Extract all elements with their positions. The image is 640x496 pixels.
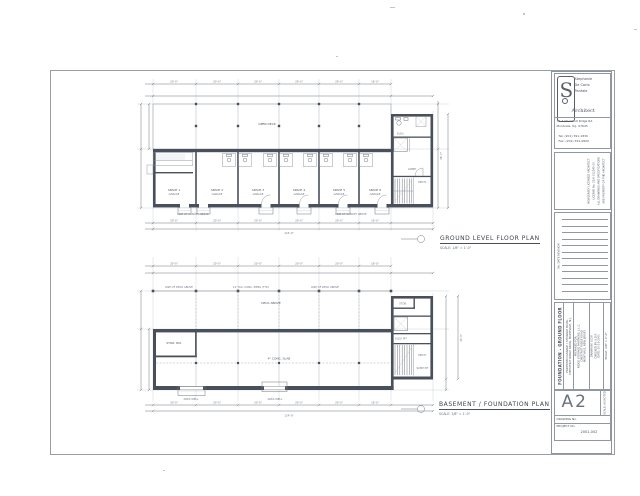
scan-speck (390, 7, 395, 8)
wing-interior: LOBBY MECH. ELEV. (393, 117, 427, 205)
divider (555, 117, 610, 118)
svg-text:GARAGE: GARAGE (212, 192, 223, 196)
svg-text:20'-0": 20'-0" (213, 80, 221, 84)
open-deck-area: OPEN DECK (153, 103, 391, 149)
drawing-title-rotated: FOUNDATION - GROUND FLOOR (557, 307, 562, 385)
svg-text:16'-0": 16'-0" (371, 262, 379, 266)
architect-tel: Tel: (201) 391-1830 (559, 134, 588, 138)
architect-info-box: S Stephanie De Carlo Pantale Architect 7… (554, 73, 611, 149)
svg-text:SPACE 1: SPACE 1 (168, 188, 180, 192)
svg-text:36'-0": 36'-0" (439, 152, 443, 160)
svg-text:20'-0": 20'-0" (295, 401, 303, 405)
architect-fax: Fax: (201) 391-0600 (559, 139, 590, 143)
svg-text:GARAGE: GARAGE (370, 192, 381, 196)
deck-label: DECK ABOVE (261, 301, 281, 305)
svg-text:20'-0": 20'-0" (295, 219, 303, 223)
mech-label: MECH. (418, 353, 427, 357)
info-line: DATE: 10-15-2001 (598, 334, 601, 358)
sheet-strip-rotated: SCALE: AS NOTED (603, 391, 606, 414)
svg-text:LINE OF DECK ABOVE: LINE OF DECK ABOVE (311, 285, 339, 289)
project-box: FOUNDATION - GROUND FLOOR PROPOSED GARAG… (554, 302, 611, 390)
svg-text:20'-0": 20'-0" (213, 262, 221, 266)
architect-address-2: Montvale, N.J. 07645 (557, 124, 588, 128)
ground-floor-plan-drawing: 20'-0" 20'-0" 20'-0" 20'-0" 20'-0" 16'-0… (129, 73, 465, 253)
architect-name-3: Pantale (575, 89, 588, 93)
svg-text:20'-0": 20'-0" (254, 80, 262, 84)
svg-text:GARAGE: GARAGE (169, 192, 180, 196)
scan-speck (523, 13, 525, 15)
unit1-closet (154, 153, 193, 166)
svg-text:20'-0": 20'-0" (213, 401, 221, 405)
svg-text:GARAGE: GARAGE (294, 192, 305, 196)
elev-label: ELEV. (397, 132, 404, 136)
svg-text:124'-0": 124'-0" (284, 414, 293, 418)
sheet-border: S Stephanie De Carlo Pantale Architect 7… (50, 70, 615, 455)
project-no-value: 2001-002 (581, 430, 598, 434)
svg-text:20'-0": 20'-0" (170, 262, 178, 266)
slab-label: 4" CONC. SLAB (268, 357, 291, 361)
project-line: CHESTNUT RIDGE ROAD, MONTVALE, N.J. (568, 317, 572, 375)
svg-text:20'-0": 20'-0" (170, 219, 178, 223)
svg-text:20'-0": 20'-0" (254, 401, 262, 405)
date-scale-rotated: SCALE: 1/8" = 1'-0" (604, 332, 608, 359)
dimension-texts: 20'-0" 20'-0" 20'-0" 20'-0" 20'-0" 16'-0… (170, 80, 443, 235)
architect-title: Architect (572, 108, 595, 114)
sump-label: SUMP PIT (416, 366, 429, 370)
svg-text:20'-0": 20'-0" (254, 219, 262, 223)
well-label: AREA WELL (184, 397, 199, 401)
svg-text:SPACE 3: SPACE 3 (252, 188, 264, 192)
svg-text:SPACE 2: SPACE 2 (211, 188, 223, 192)
svg-text:20'-0": 20'-0" (295, 80, 303, 84)
svg-text:20'-0": 20'-0" (254, 262, 262, 266)
svg-text:GARAGE: GARAGE (253, 192, 264, 196)
svg-text:16'-0": 16'-0" (371, 401, 379, 405)
svg-text:SPACE 6: SPACE 6 (369, 188, 381, 192)
detail-marker (401, 236, 425, 243)
canopy-label: LINE OF CANOPY ABOVE (177, 212, 209, 216)
storage-label: STOR. RM. (166, 341, 182, 345)
svg-text:33'-4": 33'-4" (459, 334, 463, 342)
architect-name-1: Stephanie (575, 77, 593, 81)
scanned-drawing-sheet: S Stephanie De Carlo Pantale Architect 7… (0, 0, 640, 496)
sheet-number-box: A2 SCALE: AS NOTED DRAWING No. PROJECT N… (554, 390, 611, 441)
svg-text:20'-0": 20'-0" (335, 262, 343, 266)
pier-line: LINE OF DECK ABOVE 12" DIA. CONC. PIERS … (152, 285, 393, 329)
svg-text:SPACE 4: SPACE 4 (293, 188, 305, 192)
scan-speck (336, 56, 338, 57)
svg-text:124'-0": 124'-0" (284, 231, 293, 235)
svg-text:16'-0": 16'-0" (371, 80, 379, 84)
project-no-label: PROJECT No. (557, 424, 576, 428)
basement-plan-drawing: 20'-0" 20'-0" 20'-0" 20'-0" 20'-0" 16'-0… (129, 251, 465, 421)
svg-text:12" DIA. CONC. PIERS (TYP.): 12" DIA. CONC. PIERS (TYP.) (233, 285, 269, 289)
dimension-texts: 20'-0" 20'-0" 20'-0" 20'-0" 20'-0" 16'-0… (170, 262, 463, 418)
license-line: NEW JERSEY LICENSED ARCHITECT (587, 158, 590, 203)
unit-labels: SPACE 1GARAGE SPACE 2GARAGE SPACE 3GARAG… (168, 188, 381, 196)
info-line: DRAWN BY: S.D.P. (591, 335, 594, 358)
svg-text:20'-0": 20'-0" (335, 80, 343, 84)
prepared-line: MONTVALE, NEW JERSEY (583, 330, 586, 362)
svg-text:GARAGE: GARAGE (334, 192, 345, 196)
scan-speck (163, 470, 165, 471)
revision-table: No. DATE REVISION (554, 212, 611, 300)
svg-text:20'-0": 20'-0" (335, 401, 343, 405)
svg-text:20'-0": 20'-0" (170, 401, 178, 405)
bathrooms (223, 154, 373, 167)
architect-address-1: 79-2 Chestnut Ridge Rd. (557, 119, 594, 123)
mech-label: MECH. (418, 180, 427, 184)
grid-lines (137, 79, 449, 231)
drawing-no-label: DRAWING No. (557, 417, 578, 421)
canopy-label: LINE OF CANOPY ABOVE (335, 212, 367, 216)
sheet-number: A2 (562, 392, 588, 412)
svg-text:16'-0": 16'-0" (371, 219, 379, 223)
license-line: ALL DRAWINGS AND SPECIFICATIONS (597, 157, 600, 205)
wing-stor-label: STOR. (399, 302, 407, 306)
revision-header: No. DATE REVISION (557, 243, 560, 268)
license-line: LICENSE No. 21AI 012345 00 (592, 162, 595, 200)
lobby-label: LOBBY (408, 167, 417, 171)
svg-text:SPACE 5: SPACE 5 (333, 188, 345, 192)
architect-logo: S (557, 76, 575, 122)
scan-speck (634, 29, 637, 30)
area-wells: AREA WELL AREA WELL (178, 382, 287, 401)
detail-marker (401, 406, 425, 413)
svg-text:20'-0": 20'-0" (170, 80, 178, 84)
walls (153, 296, 433, 390)
svg-text:LINE OF DECK ABOVE: LINE OF DECK ABOVE (165, 285, 193, 289)
wing-interior: STOR. ELEV. PIT MECH. SUMP PIT (394, 302, 429, 376)
wing-stair (393, 178, 414, 205)
svg-text:20'-0": 20'-0" (335, 219, 343, 223)
wing-stair (395, 344, 414, 376)
beam-and-columns: 4" CONC. SLAB (156, 333, 391, 386)
license-box: NEW JERSEY LICENSED ARCHITECT LICENSE No… (554, 152, 611, 210)
deck-label: OPEN DECK (258, 122, 277, 126)
svg-text:20'-0": 20'-0" (213, 219, 221, 223)
architect-name-2: De Carlo (575, 83, 590, 87)
title-block: S Stephanie De Carlo Pantale Architect 7… (551, 71, 612, 454)
logo-circle (562, 98, 568, 104)
elev-pit-label: ELEV. PIT (395, 337, 407, 341)
svg-text:20'-0": 20'-0" (295, 262, 303, 266)
license-line: ARE PROPERTY OF THE ARCHITECT (602, 158, 605, 203)
well-label: AREA WELL (268, 397, 283, 401)
